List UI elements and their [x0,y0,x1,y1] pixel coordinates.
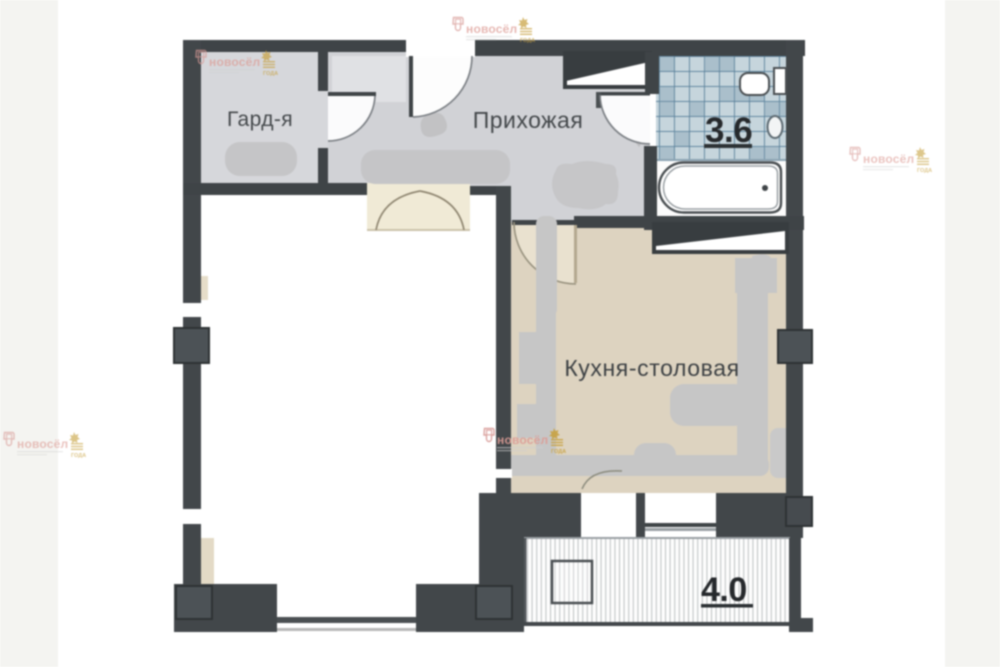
svg-text:Прихожая: Прихожая [473,107,584,133]
svg-text:Гард-я: Гард-я [227,108,293,131]
svg-text:4.0: 4.0 [701,571,747,609]
svg-text:Кухня-столовая: Кухня-столовая [564,355,739,381]
